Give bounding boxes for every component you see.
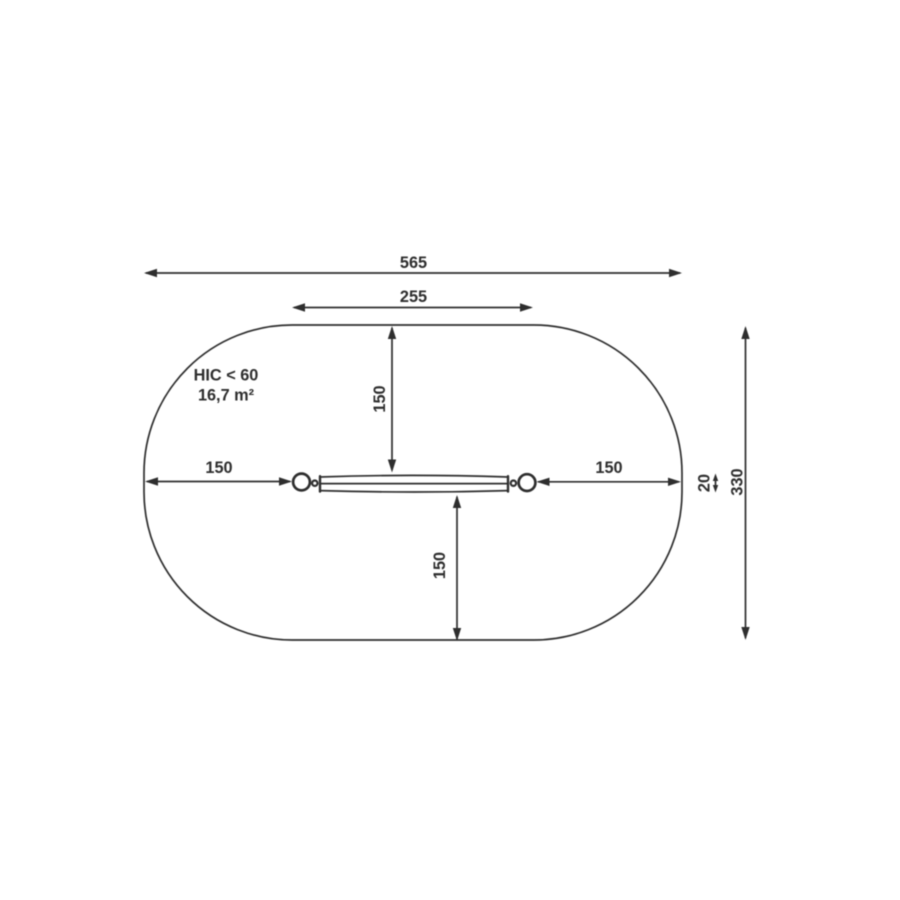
svg-text:150: 150: [431, 552, 449, 579]
svg-text:HIC < 60: HIC < 60: [194, 367, 259, 385]
svg-text:565: 565: [400, 254, 427, 272]
svg-text:150: 150: [371, 385, 389, 412]
svg-text:150: 150: [205, 459, 232, 477]
svg-text:150: 150: [595, 459, 622, 477]
svg-text:330: 330: [728, 468, 746, 495]
svg-text:16,7 m²: 16,7 m²: [198, 387, 255, 405]
svg-text:20: 20: [696, 474, 714, 492]
svg-text:255: 255: [400, 288, 427, 306]
